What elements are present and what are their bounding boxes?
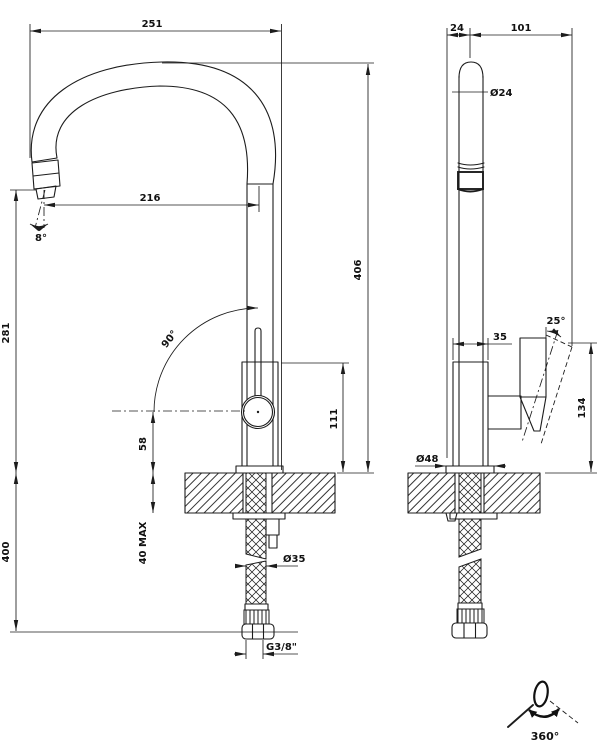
dim-spout-height: 281 [1,190,36,473]
dia-shank-label: Ø35 [283,553,305,565]
dim-spout-reach-label: 216 [140,193,161,204]
technical-drawing: 251 216 8° 281 400 90° [0,0,600,744]
dim-handle-reach-label: 101 [511,23,532,34]
spout-tube-side [458,62,484,362]
lever-solid-icon [508,705,533,727]
front-view: 251 216 8° 281 400 90° [1,19,374,659]
swivel-arrow-icon [529,709,559,717]
dim-thread-connection: G3/8" [234,640,298,659]
dia-base-label: Ø48 [416,453,438,465]
angle-handle-tilt-label: 25° [547,316,566,327]
faucet-body-side [446,362,521,473]
dim-spout-outlet-to-deck-label: 58 [138,437,149,451]
dim-shank-diameter: Ø35 [236,553,305,566]
angle-spout-tilt-label: 8° [35,233,47,244]
spout-nozzle [32,160,60,199]
thread-connection-label: G3/8" [266,642,297,653]
handle-joint-circle [242,396,275,429]
dim-body-depth-label: 35 [493,332,507,343]
dia-spout-tube-label: Ø24 [490,87,512,99]
dim-deck-thickness-max: 40 MAX [138,473,153,564]
dim-front-offset-label: 24 [450,23,464,34]
dim-spout-height-label: 281 [1,323,12,344]
handle-lever-side [520,330,572,444]
dim-total-width-label: 251 [142,19,163,30]
swivel-range-label: 360° [531,730,559,743]
dim-body-height-label: 111 [329,409,340,430]
angle-handle-travel: 90° [112,308,258,412]
lever-knob-icon [532,681,549,708]
dim-hose-length-label: 400 [1,542,12,563]
dim-spout-reach: 216 [44,186,259,212]
dim-spout-outlet-to-deck: 58 [138,412,153,473]
dim-handle-height-label: 134 [577,398,588,419]
spout-arc-outline [31,62,275,184]
dim-body-height: 111 [281,363,349,472]
dim-height-above-deck-label: 406 [353,260,364,281]
dim-spout-tube-diameter: Ø24 [452,87,512,99]
side-view: 25° 24 101 Ø24 [408,23,597,638]
dim-deck-thickness-max-label: 40 MAX [138,521,149,564]
rotation-legend: 360° [508,681,578,743]
dim-handle-height: 134 [545,343,597,473]
dim-base-diameter: Ø48 [415,453,506,466]
